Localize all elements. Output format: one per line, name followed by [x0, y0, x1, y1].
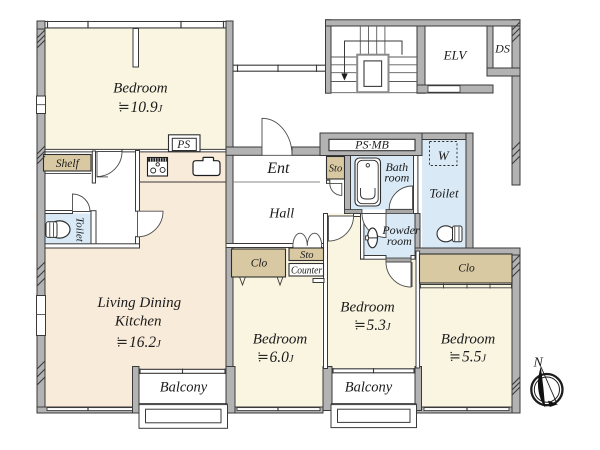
svg-text:Balcony: Balcony: [160, 380, 208, 396]
svg-text:Counter: Counter: [291, 265, 322, 276]
svg-text:Sto: Sto: [329, 164, 342, 175]
svg-text:W: W: [438, 148, 450, 163]
svg-text:Toilet: Toilet: [74, 217, 86, 243]
svg-text:Bedroom: Bedroom: [340, 300, 395, 316]
svg-text:PS: PS: [176, 139, 190, 151]
svg-text:DS: DS: [494, 41, 510, 55]
svg-text:Hall: Hall: [268, 206, 294, 221]
svg-text:room: room: [387, 234, 412, 248]
svg-text:Clo: Clo: [458, 263, 475, 275]
svg-text:Shelf: Shelf: [56, 158, 81, 170]
svg-text:Bedroom: Bedroom: [113, 80, 168, 96]
svg-text:Clo: Clo: [251, 257, 268, 269]
svg-text:Kitchen: Kitchen: [114, 314, 162, 330]
svg-text:ELV: ELV: [443, 48, 469, 63]
svg-text:Balcony: Balcony: [345, 380, 393, 396]
svg-text:Ent: Ent: [266, 160, 290, 177]
svg-text:Bedroom: Bedroom: [253, 332, 308, 348]
svg-text:Toilet: Toilet: [429, 186, 459, 201]
svg-text:PS·MB: PS·MB: [354, 138, 389, 152]
svg-text:room: room: [384, 171, 409, 185]
svg-text:Living Dining: Living Dining: [96, 295, 181, 311]
svg-text:Sto: Sto: [300, 250, 313, 261]
svg-text:Bedroom: Bedroom: [441, 332, 496, 348]
